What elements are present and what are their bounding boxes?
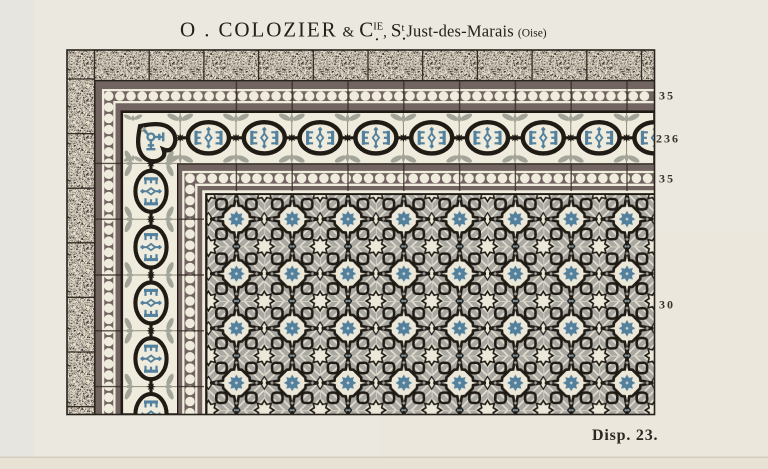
svg-text:Disp. 23.: Disp. 23.: [592, 427, 658, 444]
svg-text:O . COLOZIER&CIE,StJust-des-Ma: O . COLOZIER&CIE,StJust-des-Marais(Oise): [180, 17, 547, 41]
svg-text:30: 30: [659, 298, 675, 312]
svg-text:35: 35: [659, 172, 675, 186]
svg-text:236: 236: [656, 132, 680, 146]
svg-text:35: 35: [659, 89, 675, 103]
